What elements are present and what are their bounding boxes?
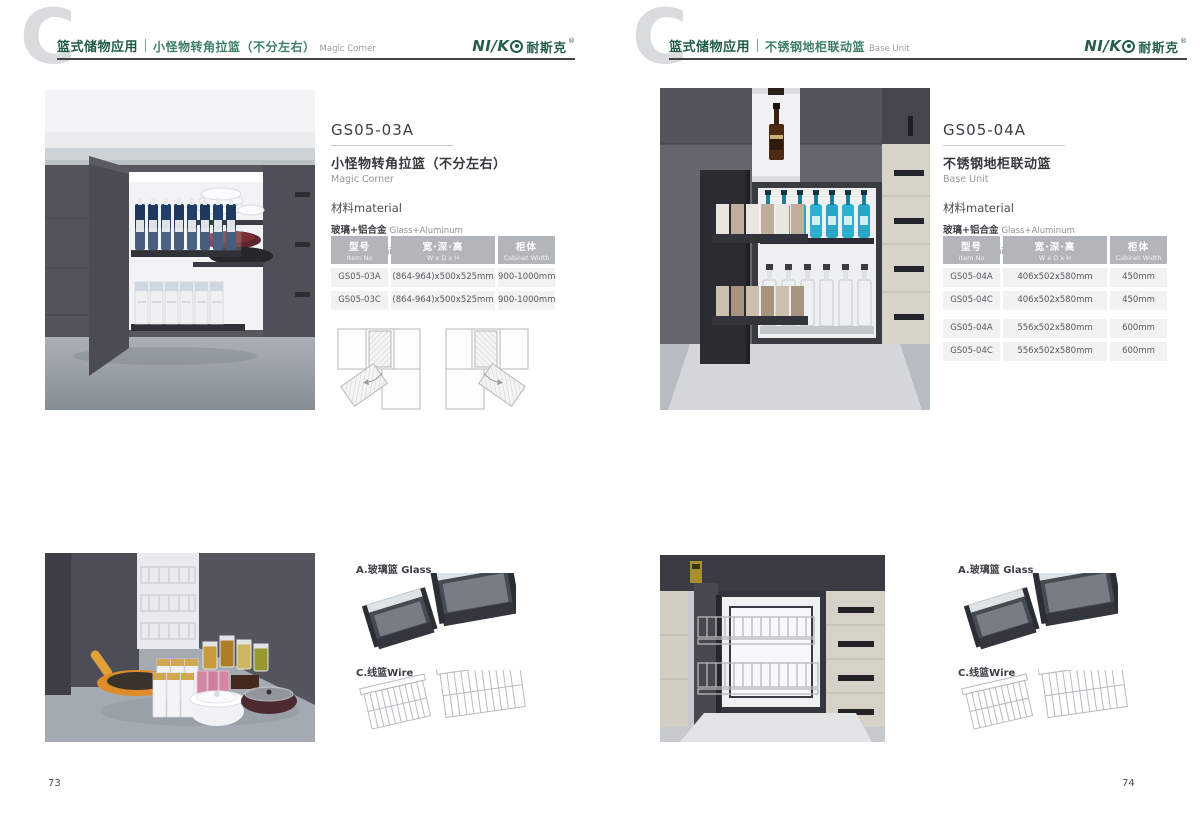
page-number: 73 bbox=[48, 778, 61, 789]
brand-logo: NI/K耐斯克® bbox=[472, 37, 575, 56]
glass-tray-large bbox=[430, 573, 516, 627]
stone-drawer-stack bbox=[826, 591, 885, 727]
product-name-cn: 不锈钢地柜联动篮 bbox=[943, 153, 1173, 172]
product-photo-wire-corner bbox=[45, 553, 315, 742]
open-door bbox=[89, 156, 129, 376]
spec-cell: 600mm bbox=[1110, 319, 1167, 338]
material-en: Glass+Aluminum bbox=[1001, 226, 1074, 236]
glass-basket-image bbox=[358, 573, 516, 669]
material-heading: 材料material bbox=[331, 200, 561, 216]
spec-header-cell: 宽·深·高W x D x H bbox=[1003, 236, 1107, 264]
spec-row: GS05-04A 406x502x580mm 450mm bbox=[943, 268, 1167, 287]
spec-cell: GS05-04A bbox=[943, 268, 1000, 287]
material-cn: 玻璃+铝合金 bbox=[331, 225, 386, 236]
logo-o-icon bbox=[1122, 40, 1135, 53]
spec-table: 型号Item No 宽·深·高W x D x H 柜体Cabinet Width… bbox=[943, 236, 1167, 361]
brand-logo: NI/K耐斯克® bbox=[1084, 37, 1187, 56]
spec-cell: 450mm bbox=[1110, 268, 1167, 287]
header-product-title: 小怪物转角拉篮（不分左右） bbox=[153, 38, 316, 55]
header-product-subtitle: Magic Corner bbox=[320, 44, 376, 54]
registered-mark: ® bbox=[568, 37, 575, 45]
material-item: 玻璃+铝合金Glass+Aluminum bbox=[331, 222, 561, 237]
wire-tray-large bbox=[436, 670, 526, 718]
wire-tray-small bbox=[360, 674, 434, 730]
material-item: 玻璃+铝合金Glass+Aluminum bbox=[943, 222, 1173, 237]
spec-cell: GS05-04C bbox=[943, 291, 1000, 310]
chocolate-box bbox=[231, 675, 259, 689]
accessory-label-glass: A.玻璃篮 Glass bbox=[356, 561, 432, 576]
model-rule bbox=[331, 145, 453, 146]
header-divider bbox=[757, 39, 758, 52]
spec-row: GS05-04C 406x502x580mm 450mm bbox=[943, 291, 1167, 310]
spec-header-cell: 型号Item No bbox=[943, 236, 1000, 264]
logo-o-icon bbox=[510, 40, 523, 53]
accessory-label-wire: C.线篮Wire bbox=[356, 664, 413, 679]
product-name-en: Base Unit bbox=[943, 174, 1173, 185]
plan-diagram-left-version bbox=[336, 321, 424, 417]
header-divider bbox=[145, 39, 146, 52]
spec-cell: 556x502x580mm bbox=[1003, 319, 1107, 338]
spec-cell: 406x502x580mm bbox=[1003, 268, 1107, 287]
spec-row: GS05-03A (864-964)x500x525mm 900-1000mm bbox=[331, 268, 555, 287]
glass-tray-small bbox=[362, 587, 439, 650]
spec-header-cell: 柜体Cabinet Width bbox=[498, 236, 555, 264]
open-door bbox=[694, 583, 718, 733]
spec-cell: GS05-04C bbox=[943, 342, 1000, 361]
spec-cell: 450mm bbox=[1110, 291, 1167, 310]
magic-corner-illustration bbox=[45, 90, 315, 410]
right-stone-drawers bbox=[882, 88, 930, 344]
wire-basket-image bbox=[358, 670, 526, 748]
model-number: GS05-04A bbox=[943, 121, 1173, 139]
brand-logo-cn: 耐斯克 bbox=[1138, 37, 1179, 56]
header-product-title: 不锈钢地柜联动篮 bbox=[765, 38, 865, 55]
page-header-right: 篮式储物应用 不锈钢地柜联动篮 Base Unit NI/K耐斯克® bbox=[669, 36, 1187, 60]
spec-cell: 600mm bbox=[1110, 342, 1167, 361]
plan-diagram-right-version bbox=[442, 321, 530, 417]
spec-header-row: 型号Item No 宽·深·高W x D x H 柜体Cabinet Width bbox=[331, 236, 555, 264]
spec-cell: (864-964)x500x525mm bbox=[391, 268, 495, 287]
spec-cell: 900-1000mm bbox=[498, 268, 555, 287]
spec-cell: GS05-03A bbox=[331, 268, 388, 287]
dark-pot bbox=[241, 687, 297, 714]
brand-logo-latin: NI/K bbox=[1084, 37, 1121, 55]
accessory-label-wire: C.线篮Wire bbox=[958, 664, 1015, 679]
page-number: 74 bbox=[1122, 778, 1135, 789]
wire-basket-image bbox=[960, 670, 1128, 748]
product-photo-wire-base-unit bbox=[660, 555, 885, 742]
registered-mark: ® bbox=[1180, 37, 1187, 45]
spec-table: 型号Item No 宽·深·高W x D x H 柜体Cabinet Width… bbox=[331, 236, 555, 310]
spec-cell: (864-964)x500x525mm bbox=[391, 291, 495, 310]
spec-header-row: 型号Item No 宽·深·高W x D x H 柜体Cabinet Width bbox=[943, 236, 1167, 264]
spec-row: GS05-03C (864-964)x500x525mm 900-1000mm bbox=[331, 291, 555, 310]
material-heading: 材料material bbox=[943, 200, 1173, 216]
display-niche bbox=[752, 88, 800, 182]
spec-cell: 900-1000mm bbox=[498, 291, 555, 310]
header-product-subtitle: Base Unit bbox=[869, 44, 910, 54]
brand-logo-cn: 耐斯克 bbox=[526, 37, 567, 56]
header-rule bbox=[57, 58, 575, 60]
category-title: 篮式储物应用 bbox=[669, 36, 750, 55]
spec-header-cell: 型号Item No bbox=[331, 236, 388, 264]
spec-row: GS05-04A 556x502x580mm 600mm bbox=[943, 319, 1167, 338]
product-name-en: Magic Corner bbox=[331, 174, 561, 185]
right-cabinet bbox=[263, 165, 315, 337]
product-name-cn: 小怪物转角拉篮（不分左右） bbox=[331, 153, 561, 172]
spec-cell: 556x502x580mm bbox=[1003, 342, 1107, 361]
spec-header-cell: 柜体Cabinet Width bbox=[1110, 236, 1167, 264]
catalog-spread: C 篮式储物应用 小怪物转角拉篮（不分左右） Magic Corner NI/K… bbox=[0, 0, 1200, 820]
white-pot bbox=[190, 691, 244, 726]
spec-header-cell: 宽·深·高W x D x H bbox=[391, 236, 495, 264]
brand-logo-latin: NI/K bbox=[472, 37, 509, 55]
material-cn: 玻璃+铝合金 bbox=[943, 225, 998, 236]
spec-cell: 406x502x580mm bbox=[1003, 291, 1107, 310]
spec-cell: GS05-04A bbox=[943, 319, 1000, 338]
page-header-left: 篮式储物应用 小怪物转角拉篮（不分左右） Magic Corner NI/K耐斯… bbox=[57, 36, 575, 60]
header-rule bbox=[669, 58, 1187, 60]
model-number: GS05-03A bbox=[331, 121, 561, 139]
spec-row: GS05-04C 556x502x580mm 600mm bbox=[943, 342, 1167, 361]
glass-basket-image bbox=[960, 573, 1118, 669]
material-en: Glass+Aluminum bbox=[389, 226, 462, 236]
model-rule bbox=[943, 145, 1065, 146]
product-photo-magic-corner bbox=[45, 90, 315, 410]
product-photo-base-unit bbox=[660, 88, 930, 410]
accessory-label-glass: A.玻璃篮 Glass bbox=[958, 561, 1034, 576]
spec-cell: GS05-03C bbox=[331, 291, 388, 310]
category-title: 篮式储物应用 bbox=[57, 36, 138, 55]
